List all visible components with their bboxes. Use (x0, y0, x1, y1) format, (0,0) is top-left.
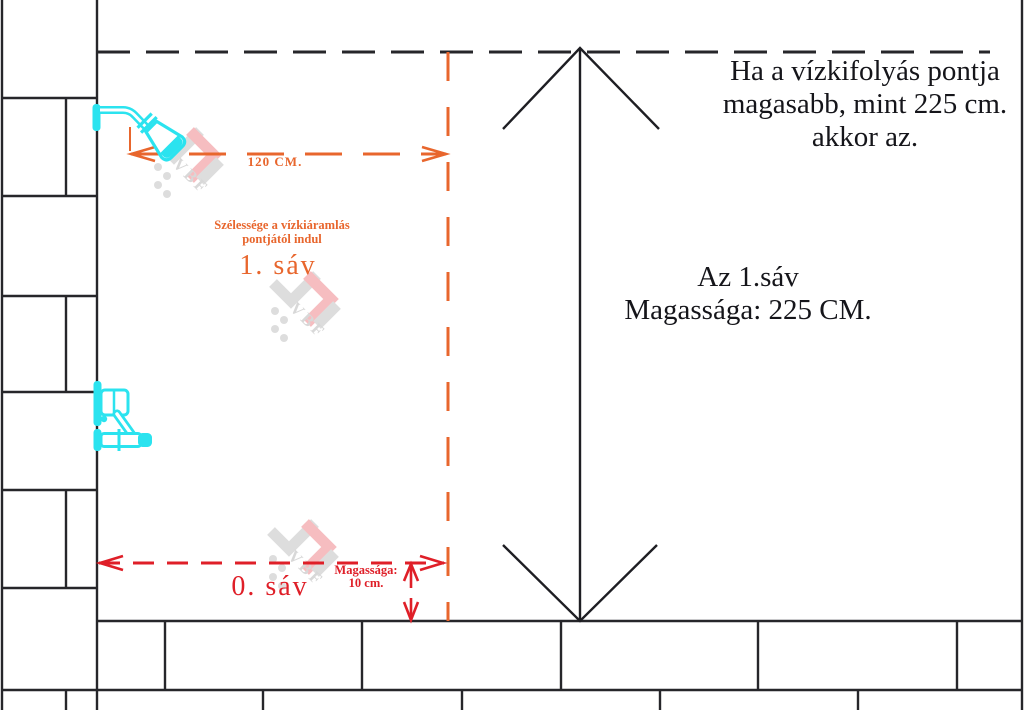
band1-height-note: Az 1.sáv Magassága: 225 CM. (590, 261, 906, 327)
condition-note: Ha a vízkifolyás pontja magasabb, mint 2… (700, 55, 1024, 154)
height-225-arrow (503, 48, 659, 621)
faucet-icon (94, 381, 153, 451)
watermarks (154, 131, 337, 590)
band1-width-dim-label: 120 CM. (240, 155, 310, 170)
shower-installation-diagram: VBF (0, 0, 1024, 710)
band0-height-note: Magassága: 10 cm. (316, 564, 416, 590)
band1-width-note: Szélessége a vízkiáramlás pontjától indu… (182, 219, 382, 246)
floor-tiles (97, 621, 1022, 710)
band1-label: 1. sáv (198, 250, 358, 282)
left-wall-bricks (2, 0, 97, 710)
